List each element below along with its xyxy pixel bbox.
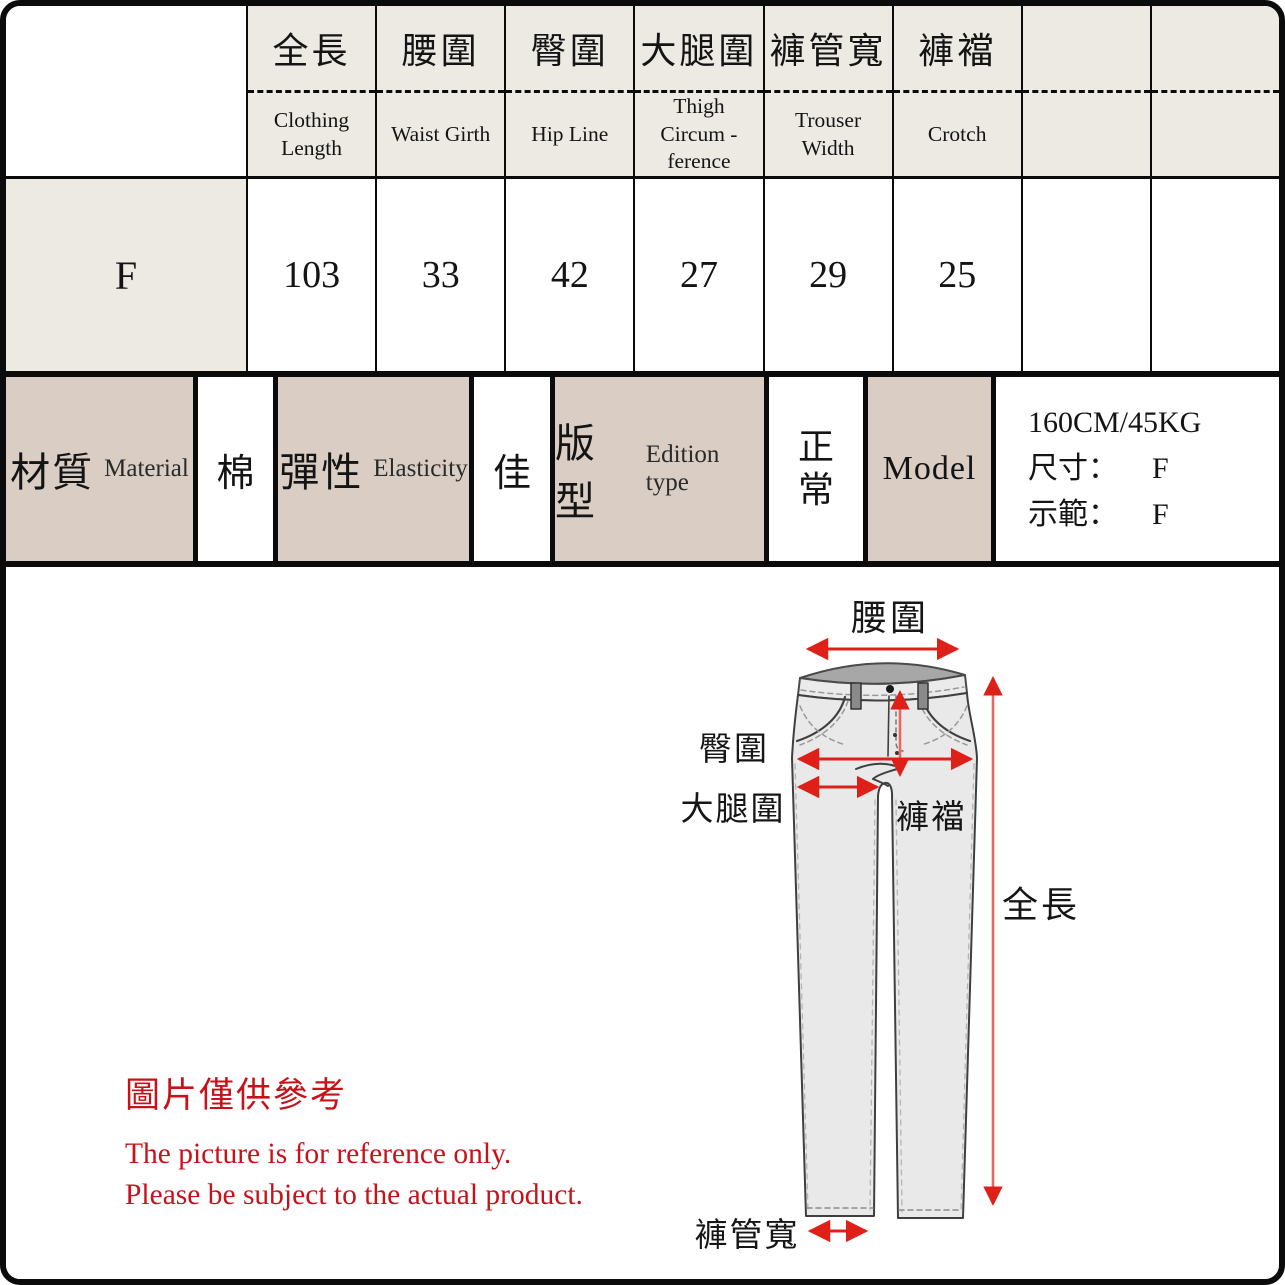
hip-label: 臀圍 <box>699 732 769 768</box>
col-header-thigh: 大腿圍 Thigh Circum -ference <box>633 6 762 179</box>
diagram-section: 腰圍 臀圍 大腿圍 褲襠 全長 褲管寬 圖片僅供參考 The picture i… <box>6 567 1279 1279</box>
demo-label: 示範： <box>1028 500 1118 530</box>
info-row: 材質 Material 棉 彈性 Elasticity 佳 版型 Edition… <box>6 377 1279 567</box>
elasticity-value-cell: 佳 <box>474 377 555 561</box>
disclaimer-zh: 圖片僅供參考 <box>125 1067 583 1118</box>
disclaimer-note: 圖片僅供參考 The picture is for reference only… <box>125 1067 583 1215</box>
header-en: Crotch <box>928 121 987 149</box>
edition-zh: 版型 <box>555 411 636 527</box>
demo-value: F <box>1152 500 1169 530</box>
col-header-crotch: 褲襠 Crotch <box>892 6 1021 179</box>
material-en: Material <box>104 455 189 483</box>
model-spec: 160CM/45KG <box>1028 408 1201 438</box>
value-hip-line: 42 <box>504 179 633 371</box>
value-crotch: 25 <box>892 179 1021 371</box>
table-corner-cell <box>6 6 246 179</box>
col-header-empty-2 <box>1150 6 1279 179</box>
crotch-label: 褲襠 <box>896 799 966 836</box>
header-zh: 臀圍 <box>506 6 633 93</box>
model-label-cell: Model <box>868 377 996 561</box>
leg-width-label: 褲管寬 <box>695 1217 800 1254</box>
col-header-waist-girth: 腰圍 Waist Girth <box>375 6 504 179</box>
elasticity-en: Elasticity <box>373 455 467 483</box>
value-trouser-width: 29 <box>763 179 892 371</box>
material-label-cell: 材質 Material <box>6 377 198 561</box>
elasticity-label-cell: 彈性 Elasticity <box>278 377 474 561</box>
header-zh: 大腿圍 <box>635 6 762 93</box>
edition-label-cell: 版型 Edition type <box>555 377 769 561</box>
size-value: F <box>1152 454 1169 484</box>
value-clothing-length: 103 <box>246 179 375 371</box>
size-table: 全長 Clothing Length 腰圍 Waist Girth 臀圍 Hip… <box>6 6 1279 377</box>
material-zh: 材質 <box>10 440 94 498</box>
model-info-cell: 160CM/45KG 尺寸： F 示範： F <box>996 377 1279 561</box>
material-value-cell: 棉 <box>198 377 278 561</box>
col-header-hip-line: 臀圍 Hip Line <box>504 6 633 179</box>
size-row-label: F <box>6 179 246 371</box>
header-zh: 腰圍 <box>377 6 504 93</box>
value-empty-1 <box>1021 179 1150 371</box>
header-zh: 全長 <box>248 6 375 93</box>
value-thigh: 27 <box>633 179 762 371</box>
header-en: Clothing Length <box>261 107 363 162</box>
edition-en: Edition type <box>646 441 764 497</box>
model-label: Model <box>883 450 977 488</box>
value-waist-girth: 33 <box>375 179 504 371</box>
size-chart-sheet: 全長 Clothing Length 腰圍 Waist Girth 臀圍 Hip… <box>0 0 1285 1285</box>
header-en: Waist Girth <box>391 121 490 149</box>
full-length-label: 全長 <box>1002 885 1080 925</box>
header-zh: 褲管寬 <box>765 6 892 93</box>
pants-drawing <box>792 663 977 1218</box>
elasticity-zh: 彈性 <box>279 440 363 498</box>
value-empty-2 <box>1150 179 1279 371</box>
header-en: Trouser Width <box>777 107 879 162</box>
col-header-empty-1 <box>1021 6 1150 179</box>
thigh-label: 大腿圍 <box>681 791 786 828</box>
edition-value: 正常 <box>795 426 837 512</box>
header-en: Thigh Circum -ference <box>648 93 750 176</box>
waist-label: 腰圍 <box>851 598 929 638</box>
disclaimer-en-line1: The picture is for reference only. <box>125 1134 583 1175</box>
edition-value-cell: 正常 <box>769 377 868 561</box>
size-label: 尺寸： <box>1028 454 1118 484</box>
disclaimer-en-line2: Please be subject to the actual product. <box>125 1175 583 1216</box>
header-en: Hip Line <box>531 121 608 149</box>
header-zh: 褲襠 <box>894 6 1021 93</box>
col-header-clothing-length: 全長 Clothing Length <box>246 6 375 179</box>
col-header-trouser-width: 褲管寬 Trouser Width <box>763 6 892 179</box>
